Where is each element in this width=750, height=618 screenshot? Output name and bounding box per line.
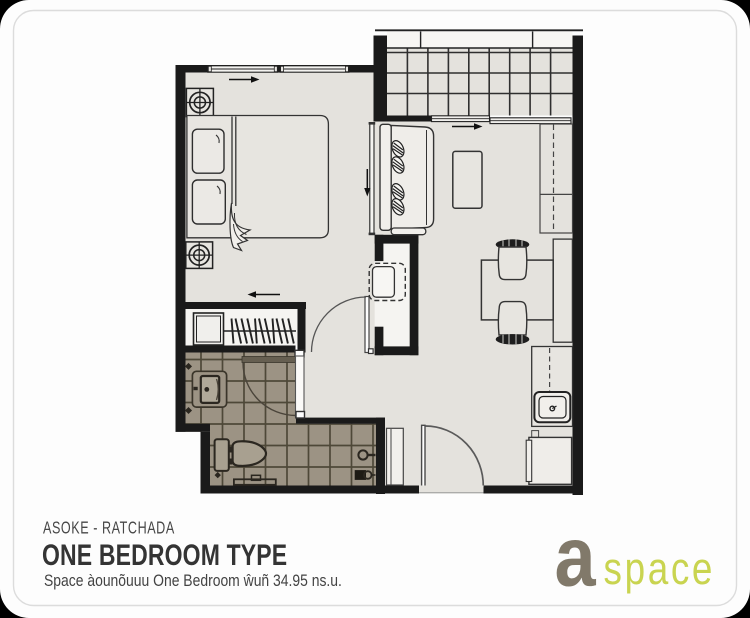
- svg-text:space: space: [604, 544, 716, 594]
- svg-text:a: a: [555, 509, 597, 603]
- svg-text:ONE BEDROOM TYPE: ONE BEDROOM TYPE: [42, 538, 287, 571]
- svg-text:Space àounõuuu One Bedroom ŵu: Space àounõuuu One Bedroom ŵuñ 34.95 ns.…: [44, 572, 342, 590]
- svg-text:ASOKE - RATCHADA: ASOKE - RATCHADA: [43, 518, 175, 538]
